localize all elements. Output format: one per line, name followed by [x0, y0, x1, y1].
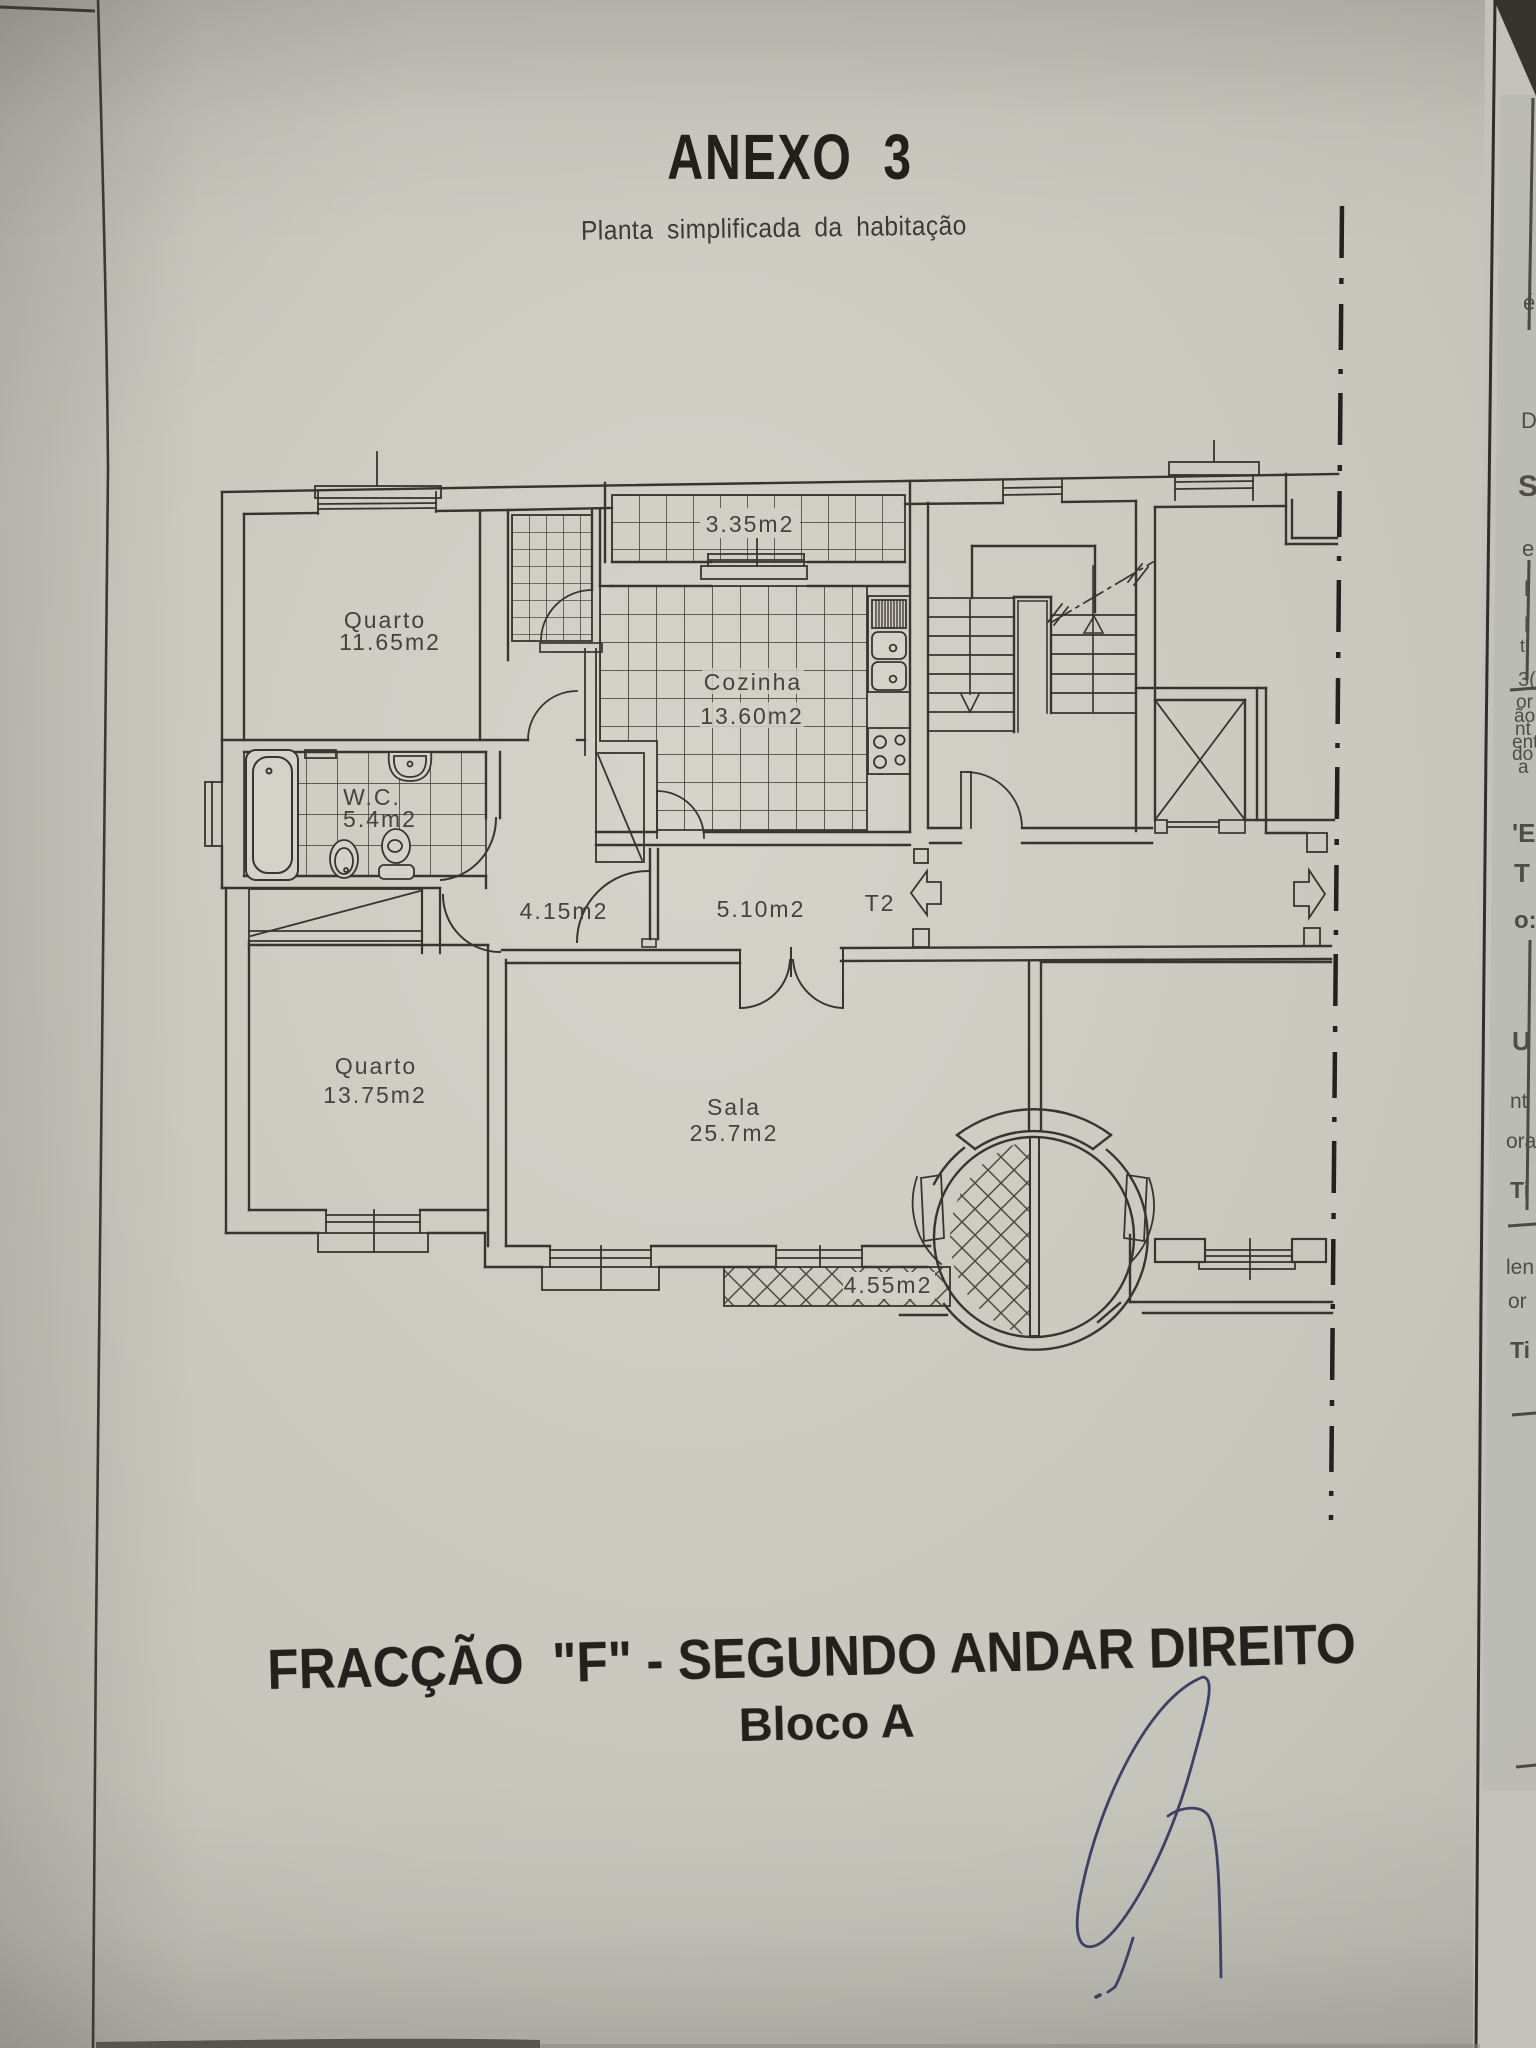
svg-text:11.65m2: 11.65m2	[339, 629, 441, 655]
svg-text:3.35m2: 3.35m2	[706, 511, 795, 537]
svg-text:5.10m2: 5.10m2	[717, 896, 806, 922]
svg-text:ora: ora	[1506, 1130, 1536, 1153]
svg-text:U: U	[1512, 1026, 1531, 1056]
svg-text:S: S	[1518, 470, 1536, 503]
svg-text:D: D	[1521, 408, 1536, 433]
svg-text:Cozinha: Cozinha	[704, 669, 802, 695]
svg-text:o:: o:	[1514, 907, 1536, 934]
svg-text:Bloco A: Bloco A	[738, 1694, 915, 1751]
svg-text:4.55m2: 4.55m2	[844, 1272, 933, 1298]
svg-text:or: or	[1508, 1290, 1527, 1313]
svg-text:Ti: Ti	[1510, 1337, 1530, 1363]
svg-text:25.7m2: 25.7m2	[690, 1120, 779, 1146]
svg-text:13.75m2: 13.75m2	[323, 1082, 427, 1108]
svg-text:I: I	[1524, 576, 1530, 601]
svg-text:é: é	[1523, 290, 1535, 315]
svg-text:ANEXO 3: ANEXO 3	[667, 122, 912, 193]
svg-text:e: e	[1522, 536, 1534, 561]
svg-text:Ti: Ti	[1510, 1177, 1530, 1203]
svg-text:Planta simplificada da habitaç: Planta simplificada da habitação	[581, 211, 967, 246]
svg-text:13.60m2: 13.60m2	[700, 703, 804, 729]
svg-text:4.15m2: 4.15m2	[520, 898, 609, 924]
svg-text:5.4m2: 5.4m2	[343, 806, 417, 832]
svg-text:I: I	[1524, 612, 1530, 637]
svg-text:FRACÇÃO "F" - SEGUNDO ANDAR D: FRACÇÃO "F" - SEGUNDO ANDAR DIREITO	[267, 1612, 1357, 1702]
svg-text:nt: nt	[1510, 1090, 1528, 1113]
svg-text:T: T	[1514, 858, 1530, 888]
svg-text:3(: 3(	[1518, 669, 1536, 691]
svg-text:Quarto: Quarto	[335, 1053, 417, 1079]
svg-text:t': t'	[1520, 636, 1528, 656]
svg-text:Sala: Sala	[707, 1094, 761, 1120]
svg-text:'E: 'E	[1512, 818, 1536, 848]
svg-text:a: a	[1518, 757, 1529, 778]
svg-text:len: len	[1506, 1256, 1534, 1279]
svg-text:T2: T2	[865, 890, 896, 916]
